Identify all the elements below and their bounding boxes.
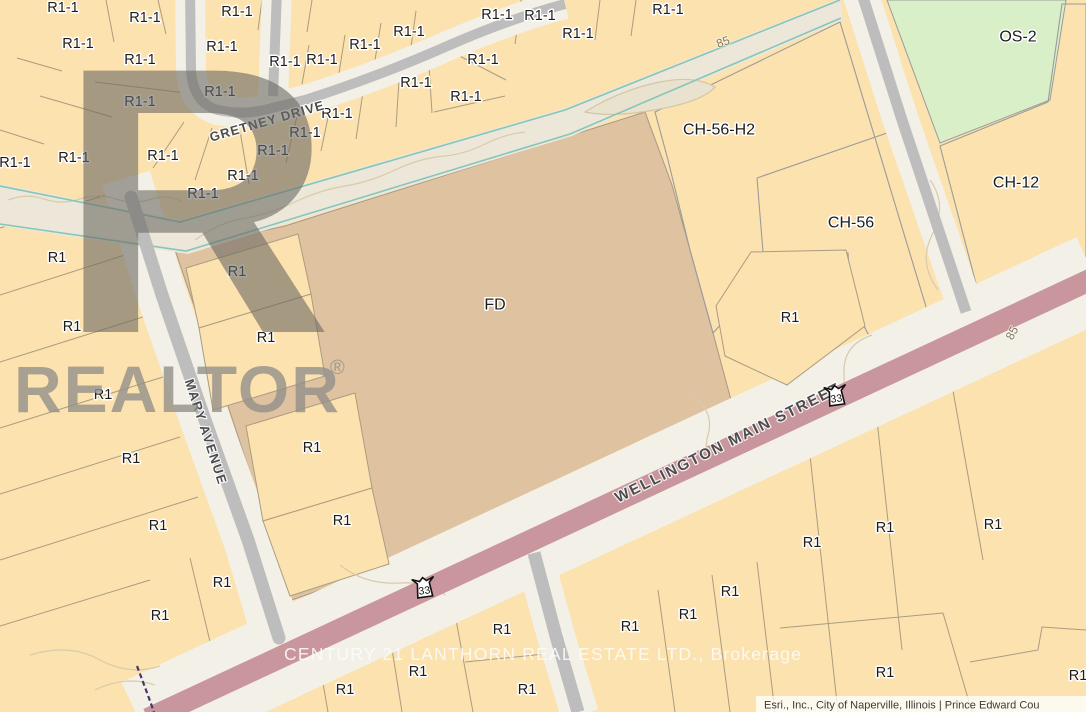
zone-label: CH-56-H2 [683,122,755,139]
parcel-label: R1-1 [450,89,481,105]
zone-label: CH-56 [828,215,874,232]
parcel-label: R1 [213,575,232,591]
parcel-label: R1-1 [481,7,512,23]
parcel-label: R1 [303,440,322,456]
zone-label: CH-12 [993,175,1039,192]
highway-shield-number: 33 [830,392,843,406]
zoning-map-canvas: R1-1R1-1R1-1R1-1R1-1R1-1R1-1R1-1R1-1R1-1… [0,0,1086,712]
parcel-label: R1-1 [652,2,683,18]
highway-shield-number: 33 [418,584,431,598]
brokerage-watermark: CENTURY 21 LANTHORN REAL ESTATE LTD., Br… [284,644,802,664]
parcel-label: R1-1 [400,75,431,91]
parcel-label: R1-1 [0,155,31,171]
parcel-label: R1-1 [562,26,593,42]
zone-label: FD [484,297,505,314]
parcel-label: R1 [336,682,355,698]
parcel-label: R1 [876,520,895,536]
parcel-label: R1 [679,607,698,623]
parcel-label: R1-1 [467,52,498,68]
attribution-text: Esri., Inc., City of Naperville, Illinoi… [764,700,1040,712]
realtor-wordmark: REALTOR [14,352,341,426]
parcel-label: R1 [781,310,800,326]
registered-mark: ® [330,357,345,379]
parcel-label: R1 [409,664,428,680]
parcel-label: R1 [1069,668,1086,684]
parcel-label: R1 [149,518,168,534]
parcel-label: R1 [876,665,895,681]
parcel-label: R1 [803,535,822,551]
parcel-label: R1 [493,622,512,638]
attribution-bar: Esri., Inc., City of Naperville, Illinoi… [756,696,1086,712]
zoning-map: R1-1R1-1R1-1R1-1R1-1R1-1R1-1R1-1R1-1R1-1… [0,0,1086,712]
parcel-label: R1 [122,451,141,467]
parcel-label: R1-1 [349,37,380,53]
parcel-label: R1 [151,608,170,624]
parcel-label: R1 [721,584,740,600]
parcel-label: R1-1 [393,24,424,40]
realtor-watermark: R REALTOR ® [14,0,345,426]
parcel-label: R1 [621,619,640,635]
parcel-label: R1 [518,682,537,698]
parcel-label: R1-1 [524,8,555,24]
parcel-label: R1 [984,517,1003,533]
parcel-label: R1 [333,513,352,529]
zone-label: OS-2 [999,29,1036,46]
